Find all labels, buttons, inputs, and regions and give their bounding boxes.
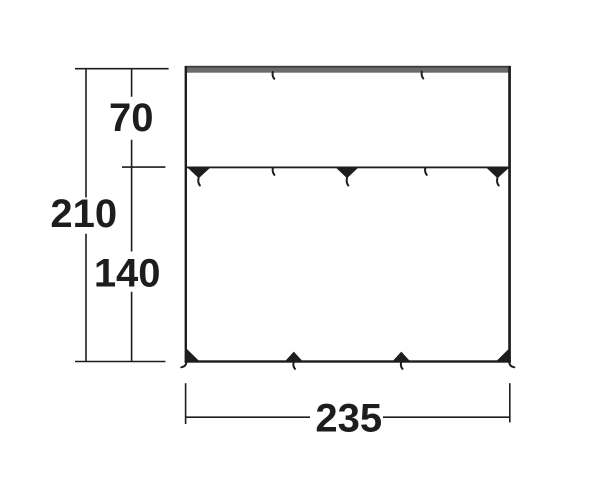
svg-text:70: 70 — [109, 96, 154, 140]
svg-text:210: 210 — [50, 192, 117, 236]
svg-text:235: 235 — [315, 396, 382, 440]
svg-text:140: 140 — [94, 252, 161, 296]
